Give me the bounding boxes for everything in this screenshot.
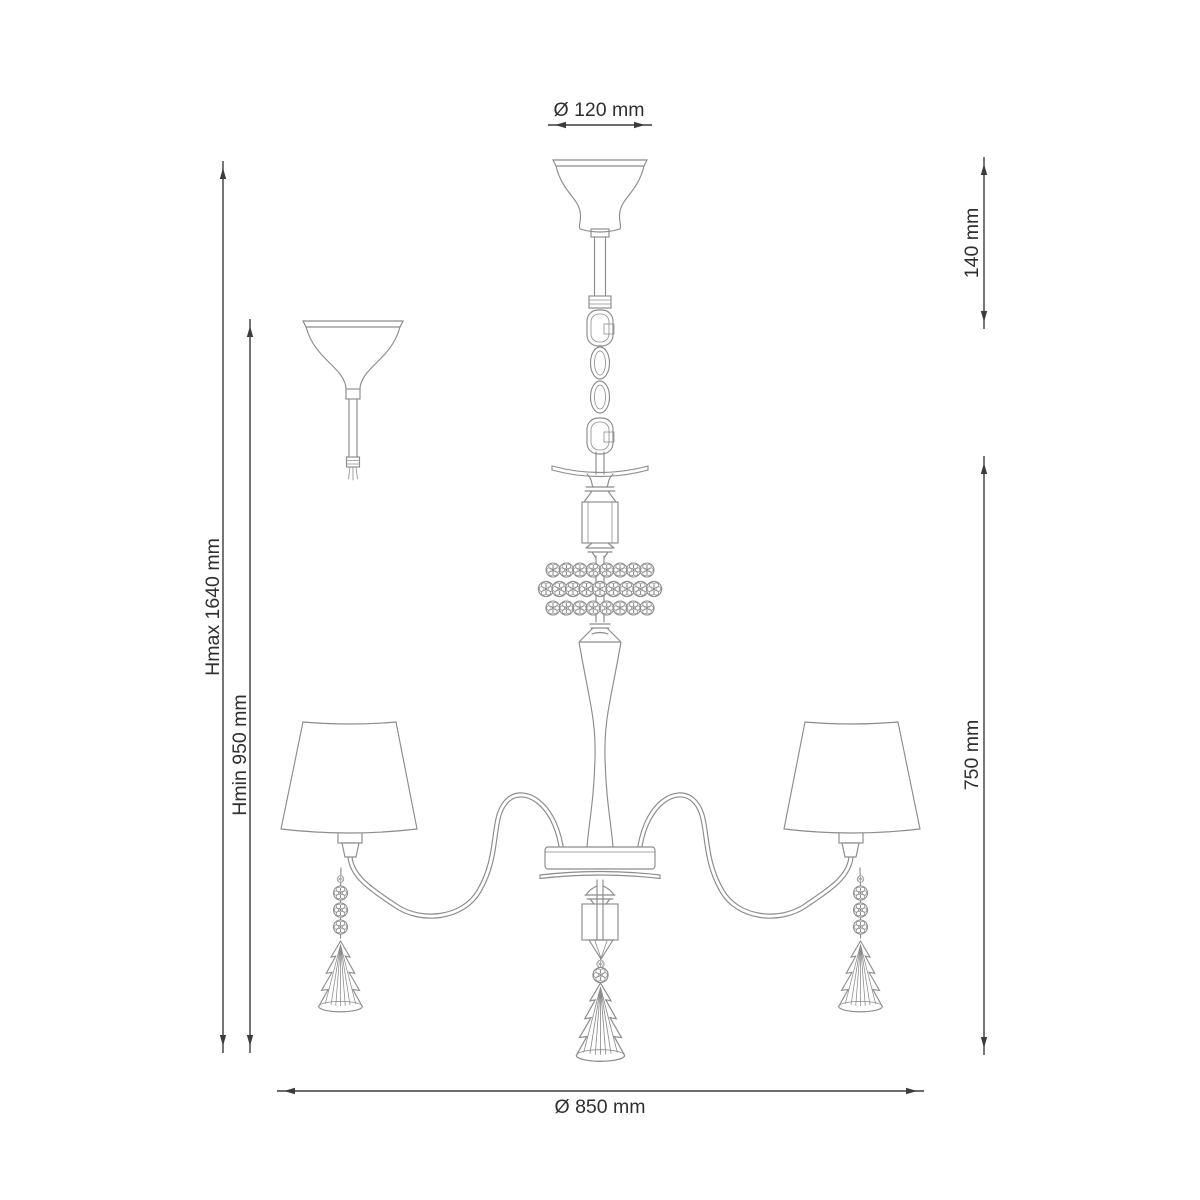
arm-hub (545, 847, 655, 869)
dim-min-height-label: Hmin 950 mm (229, 694, 251, 815)
dim-body-height: 750 mm (961, 456, 987, 1055)
dim-canopy-diameter: Ø 120 mm (548, 99, 652, 128)
chandelier-dimension-diagram: Ø 120 mm 140 mm 750 mm Hmax 1640 mm Hmin… (0, 0, 1200, 1200)
left-arm-assembly (281, 722, 561, 1012)
center-column (579, 624, 621, 847)
right-arm-assembly (640, 722, 920, 1012)
dim-fixture-diameter-label: Ø 850 mm (554, 1096, 645, 1118)
upper-spindle (582, 474, 618, 558)
dim-max-height: Hmax 1640 mm (202, 161, 226, 1053)
crystal-ring (538, 556, 661, 622)
ceiling-canopy (553, 160, 647, 296)
dim-suspension-height: 140 mm (961, 157, 987, 329)
dim-min-height: Hmin 950 mm (229, 319, 253, 1053)
suspension-chain (587, 296, 614, 474)
canopy-detail-inset (303, 321, 403, 480)
center-crystal-drop (576, 959, 624, 1061)
dim-fixture-diameter: Ø 850 mm (277, 1088, 924, 1118)
dim-max-height-label: Hmax 1640 mm (202, 538, 224, 676)
lower-bobeche (540, 872, 660, 879)
dim-canopy-diameter-label: Ø 120 mm (553, 99, 644, 121)
upper-bobeche (552, 466, 648, 477)
dim-body-height-label: 750 mm (961, 720, 983, 790)
dim-suspension-height-label: 140 mm (961, 208, 983, 278)
diagram-canvas: Ø 120 mm 140 mm 750 mm Hmax 1640 mm Hmin… (0, 0, 1200, 1200)
lower-spindle (582, 880, 618, 959)
